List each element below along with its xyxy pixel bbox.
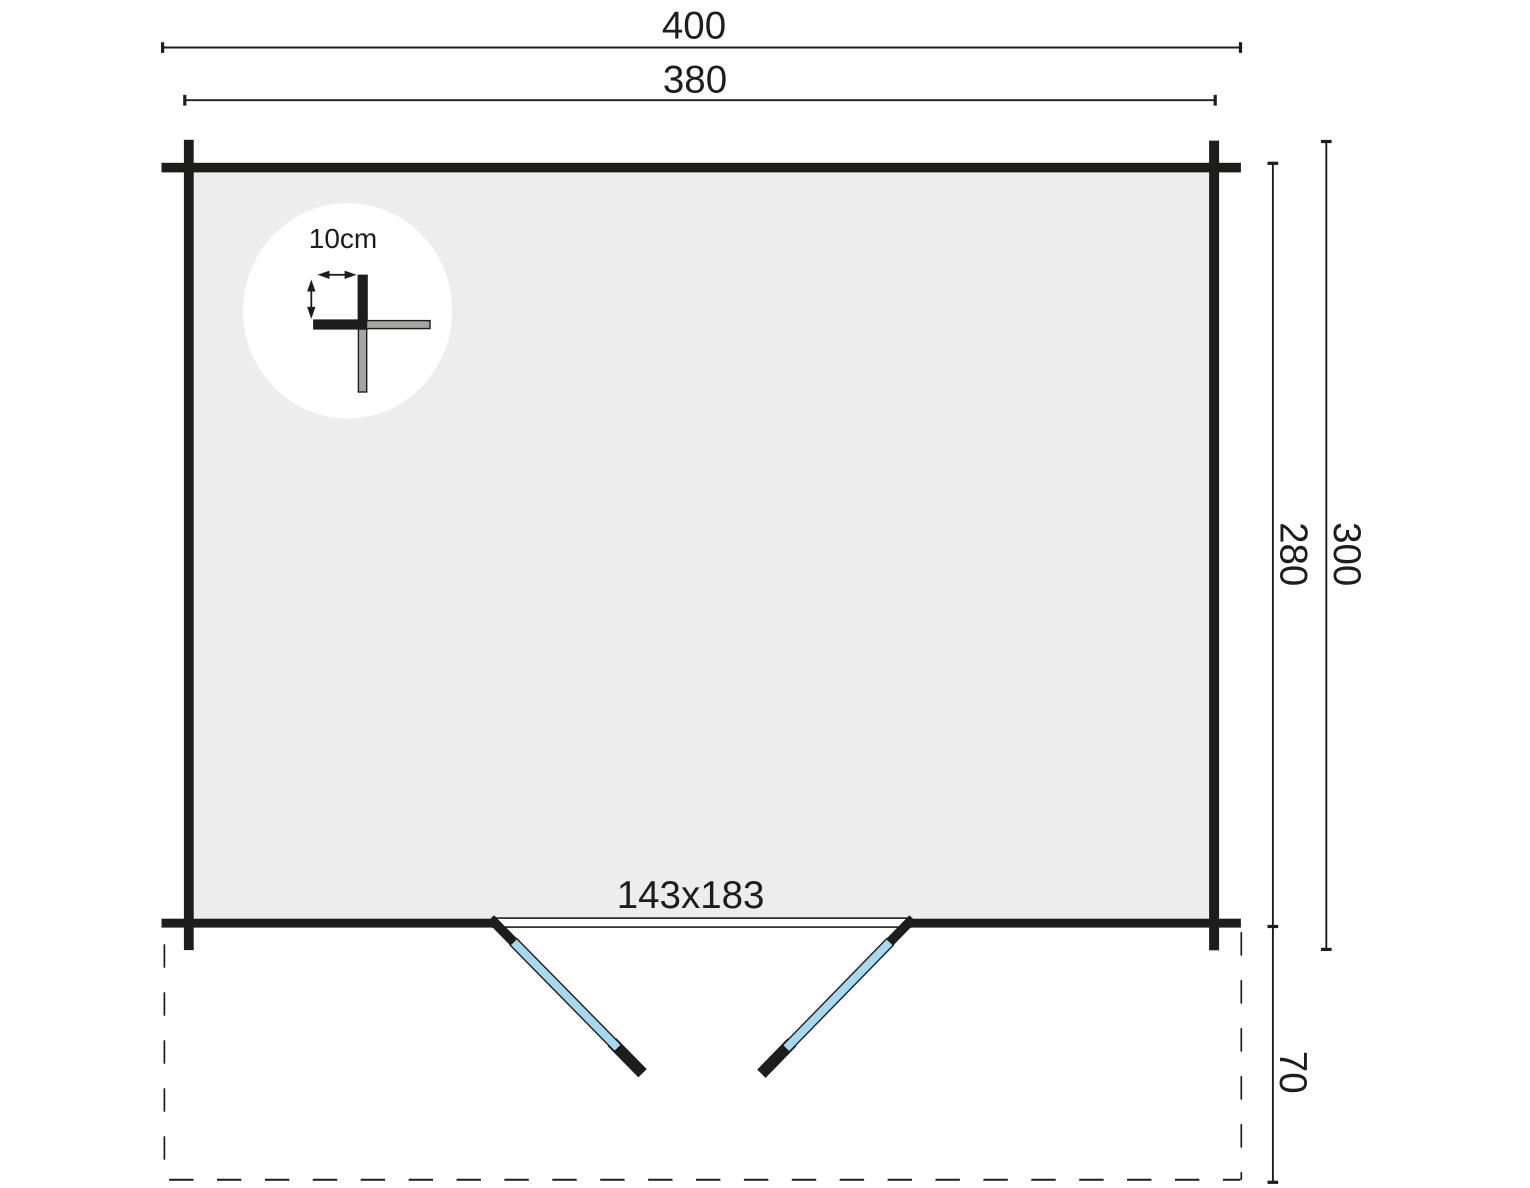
svg-text:400: 400 [662,5,726,48]
svg-text:280: 280 [1271,522,1314,586]
svg-text:70: 70 [1271,1051,1314,1094]
svg-text:10cm: 10cm [309,223,377,254]
svg-text:300: 300 [1325,522,1368,586]
svg-text:143x183: 143x183 [617,874,765,917]
svg-text:380: 380 [663,58,727,101]
